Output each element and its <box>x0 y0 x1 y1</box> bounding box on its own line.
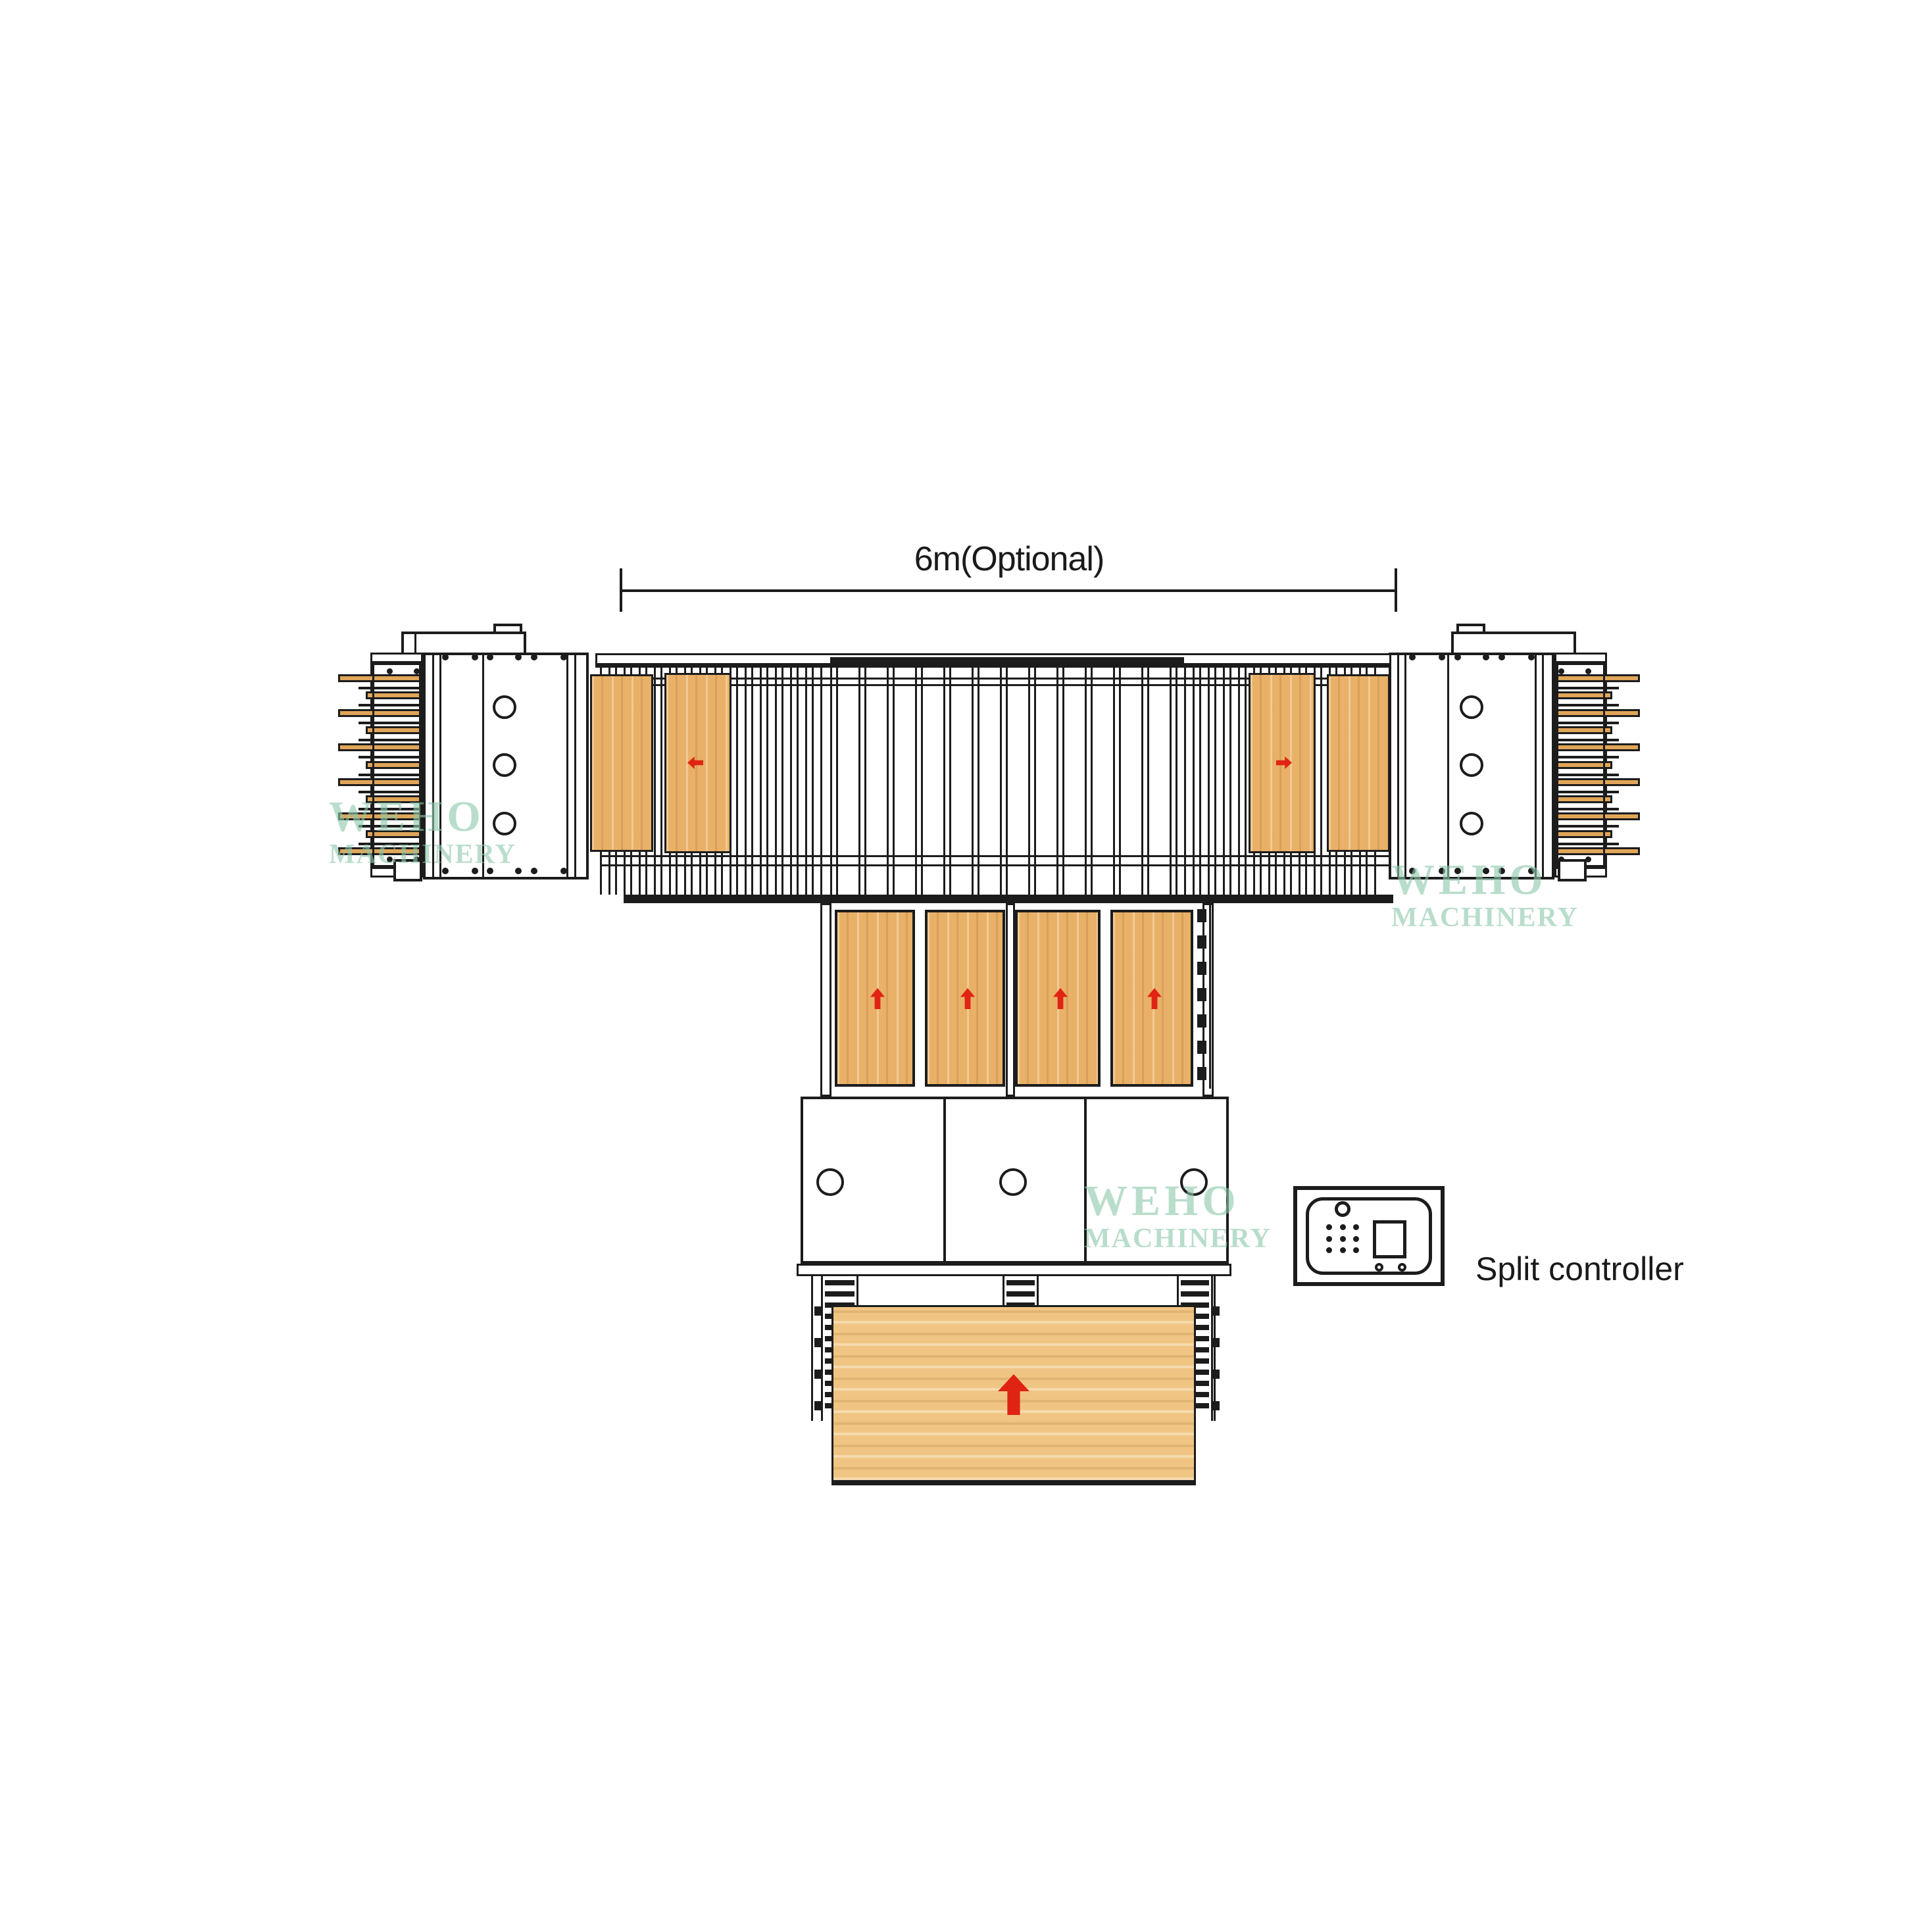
comb-tooth <box>1556 778 1640 786</box>
left-machine-top-block <box>401 632 526 655</box>
comb-gap-bar <box>1556 808 1619 810</box>
right-comb-cap-top <box>1554 653 1607 663</box>
conveyor-roller <box>1170 668 1177 895</box>
watermark-line2: MACHINERY <box>1084 1224 1272 1254</box>
keypad-dot <box>1340 1247 1346 1253</box>
dimension-line <box>621 589 1397 592</box>
bolt <box>531 868 537 874</box>
ladder-tab <box>814 1306 821 1316</box>
board-left-outfeed <box>590 674 653 852</box>
conveyor-roller <box>887 668 895 895</box>
bolt <box>560 868 567 874</box>
comb-tooth <box>1556 847 1640 855</box>
bolt <box>487 654 493 660</box>
conveyor-roller <box>1184 668 1195 895</box>
bolt <box>442 654 449 660</box>
conveyor-roller <box>751 668 762 895</box>
comb-tooth <box>1556 812 1640 820</box>
bolt <box>531 654 537 660</box>
right-comb-spine-edge <box>1556 663 1558 867</box>
right-comb-spine-edge <box>1603 663 1605 867</box>
comb-gap-bar <box>1556 704 1619 706</box>
chain-dash <box>1197 1041 1206 1054</box>
keypad-dot <box>1326 1236 1332 1242</box>
ladder-frame-left <box>811 1276 813 1421</box>
controller-knob <box>1335 1201 1350 1217</box>
conveyor-roller <box>915 668 923 895</box>
infeed-frame-left <box>820 903 831 1097</box>
comb-tooth <box>1556 674 1640 682</box>
watermark: WEHO MACHINERY <box>329 793 516 870</box>
machine-seam <box>1397 655 1399 877</box>
machine-seam <box>566 655 568 877</box>
comb-tooth <box>338 743 422 751</box>
conveyor-crossbar <box>600 855 1389 857</box>
comb-tooth <box>338 709 422 717</box>
bolt <box>472 654 478 660</box>
conveyor-roller <box>1000 668 1008 895</box>
keypad-dot <box>1353 1236 1359 1242</box>
comb-gap-bar <box>1556 774 1619 776</box>
bolt <box>560 654 567 660</box>
ladder-tab <box>1213 1370 1220 1379</box>
press-port <box>1460 695 1483 719</box>
keypad-dot <box>1326 1247 1332 1253</box>
press-port <box>493 695 516 719</box>
chain-dash <box>1197 1014 1206 1028</box>
conveyor-roller <box>972 668 979 895</box>
machine-seam <box>1535 655 1537 877</box>
controller-button <box>1375 1263 1383 1272</box>
comb-tooth <box>338 778 422 786</box>
comb-gap-bar <box>1556 722 1619 724</box>
board-right-outfeed <box>1327 674 1390 852</box>
chain-dash <box>1197 962 1206 975</box>
machine-seam <box>1404 655 1406 877</box>
feeder-port <box>816 1168 844 1196</box>
ladder-rung <box>1181 1291 1209 1297</box>
ladder-rung <box>1006 1291 1035 1297</box>
ladder-frame-right <box>1214 1276 1216 1421</box>
conveyor-roller <box>1229 668 1240 895</box>
ladder-tab <box>1213 1338 1220 1347</box>
dimension-tick-left <box>620 568 622 612</box>
infeed-panel <box>1015 910 1101 1087</box>
conveyor-roller <box>1113 668 1121 895</box>
feeder-box-base <box>797 1264 1231 1276</box>
comb-gap-bar <box>359 756 422 758</box>
controller-label: Split controller <box>1475 1250 1684 1288</box>
feeder-box-divider <box>943 1097 946 1264</box>
comb-gap-bar <box>359 687 422 689</box>
conveyor-roller <box>1214 668 1225 895</box>
comb-gap-bar <box>359 704 422 706</box>
chain-dash <box>1197 909 1206 922</box>
board-left-moving <box>664 673 731 853</box>
infeed-panel <box>925 910 1005 1087</box>
bolt <box>1585 668 1591 674</box>
conveyor-roller <box>797 668 807 895</box>
flow-arrow-left-icon <box>687 756 703 769</box>
press-port <box>1460 812 1483 835</box>
ladder-rung <box>1181 1280 1209 1285</box>
comb-gap-bar <box>1556 791 1619 793</box>
infeed-frame-center <box>1006 903 1015 1097</box>
flow-arrow-up-icon <box>1053 988 1068 1009</box>
bolt <box>515 654 522 660</box>
conveyor-roller <box>1141 668 1149 895</box>
machine-seam <box>574 655 576 877</box>
ladder-rung <box>825 1291 855 1297</box>
controller-faceplate <box>1306 1197 1432 1275</box>
dimension-tick-right <box>1395 568 1397 612</box>
conveyor-roller <box>766 668 777 895</box>
left-machine-top-step <box>414 633 416 654</box>
machine-seam <box>1542 655 1544 877</box>
conveyor-roller <box>1199 668 1210 895</box>
board-infeed-large <box>831 1305 1196 1485</box>
conveyor-roller <box>736 668 747 895</box>
keypad-dot <box>1353 1224 1359 1230</box>
ladder-rung <box>1006 1280 1035 1285</box>
infeed-chain-rail <box>1209 903 1211 1089</box>
watermark: WEHO MACHINERY <box>1391 856 1579 933</box>
board-right-moving <box>1249 673 1316 853</box>
bolt <box>1409 654 1416 660</box>
comb-tooth <box>1556 743 1640 751</box>
chain-dash <box>1197 935 1206 949</box>
bolt <box>1454 654 1461 660</box>
watermark-line2: MACHINERY <box>329 840 516 870</box>
flow-arrow-up-icon <box>960 988 975 1009</box>
left-comb-cap-top <box>370 653 423 663</box>
press-port <box>493 753 516 777</box>
feeder-port <box>999 1168 1027 1196</box>
keypad-dot <box>1326 1224 1332 1230</box>
watermark: WEHO MACHINERY <box>1084 1177 1272 1254</box>
ladder-rung <box>825 1280 855 1285</box>
comb-gap-bar <box>359 774 422 776</box>
bolt <box>1499 654 1505 660</box>
watermark-line2: MACHINERY <box>1391 903 1579 933</box>
keypad-dot <box>1340 1224 1346 1230</box>
machinery-layout-diagram: 6m(Optional) <box>0 0 1932 1932</box>
ladder-tab <box>814 1338 821 1347</box>
chain-dash <box>1197 1067 1206 1080</box>
comb-gap-bar <box>1556 739 1619 741</box>
comb-gap-bar <box>1556 825 1619 828</box>
conveyor-roller <box>830 668 838 895</box>
flow-arrow-right-icon <box>1276 756 1292 769</box>
ladder-tab <box>1213 1306 1220 1316</box>
keypad-dot <box>1340 1236 1346 1242</box>
bolt <box>1483 654 1489 660</box>
flow-arrow-up-icon <box>870 988 885 1009</box>
watermark-line1: WEHO <box>1084 1177 1272 1224</box>
infeed-panel <box>835 910 915 1087</box>
ladder-tab <box>814 1401 821 1410</box>
conveyor-roller <box>1056 668 1064 895</box>
watermark-line1: WEHO <box>1391 856 1579 903</box>
conveyor-roller <box>1085 668 1093 895</box>
press-port <box>1460 753 1483 777</box>
controller-screen <box>1373 1220 1406 1258</box>
flow-arrow-up-icon <box>1147 988 1162 1009</box>
bolt <box>387 668 393 674</box>
keypad-dot <box>1353 1247 1359 1253</box>
comb-gap-bar <box>1556 756 1619 758</box>
controller-button <box>1398 1263 1406 1272</box>
conveyor-bottom-beam <box>624 895 1393 903</box>
conveyor-crossbar <box>600 864 1389 866</box>
comb-gap-bar <box>359 722 422 724</box>
bolt <box>1439 654 1445 660</box>
watermark-line1: WEHO <box>329 793 516 840</box>
flow-arrow-up-large-icon <box>998 1374 1029 1415</box>
comb-gap-bar <box>359 739 422 741</box>
right-machine-top-block <box>1451 632 1576 655</box>
machine-seam <box>1447 655 1449 877</box>
comb-tooth <box>338 674 422 682</box>
ladder-tab <box>1213 1401 1220 1410</box>
chain-dash <box>1197 988 1206 1001</box>
conveyor-roller <box>781 668 792 895</box>
bolt <box>414 668 420 674</box>
bolt <box>1528 654 1535 660</box>
dimension-label: 6m(Optional) <box>812 539 1206 579</box>
conveyor-roller <box>943 668 951 895</box>
conveyor-roller <box>1028 668 1036 895</box>
comb-gap-bar <box>1556 843 1619 845</box>
comb-gap-bar <box>1556 687 1619 689</box>
conveyor-roller <box>858 668 866 895</box>
infeed-panel <box>1110 910 1193 1087</box>
bolt <box>1558 668 1564 674</box>
conveyor-roller <box>812 668 822 895</box>
comb-tooth <box>1556 709 1640 717</box>
ladder-tab <box>814 1370 821 1379</box>
